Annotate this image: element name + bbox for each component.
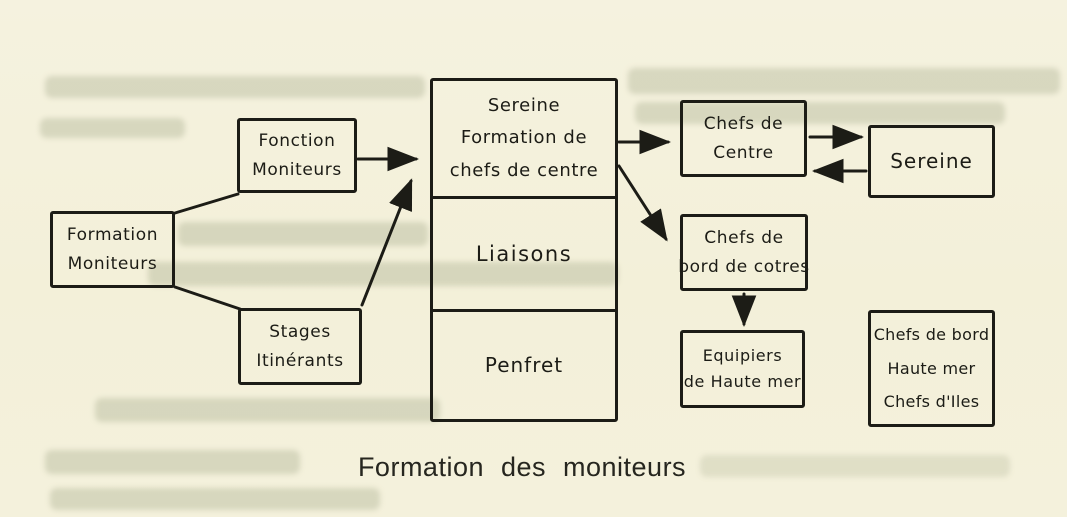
box-chefs-de-bord-haute-mer: Chefs de bord Haute mer Chefs d'Iles bbox=[868, 310, 995, 427]
box-label-line: Liaisons bbox=[476, 237, 572, 272]
box-label-line: Haute mer bbox=[888, 352, 976, 386]
box-fonction-moniteurs: Fonction Moniteurs bbox=[237, 118, 357, 193]
box-label-line: Formation de bbox=[461, 122, 587, 154]
box-formation-moniteurs: Formation Moniteurs bbox=[50, 211, 175, 288]
line-formation-to-stages bbox=[175, 287, 240, 309]
box-label-line: Equipiers bbox=[703, 343, 783, 369]
arrow-stages-to-central bbox=[362, 181, 411, 305]
box-equipiers-de-haute-mer: Equipiers de Haute mer bbox=[680, 330, 805, 408]
box-central-formation: Sereine Formation de chefs de centre Lia… bbox=[430, 78, 618, 422]
box-chefs-de-centre: Chefs de Centre bbox=[680, 100, 807, 177]
arrow-central-to-chefs-bord bbox=[619, 166, 666, 239]
box-label-line: Sereine bbox=[488, 90, 560, 122]
box-label-line: Chefs de bbox=[704, 224, 783, 252]
central-section-sereine-formation: Sereine Formation de chefs de centre bbox=[433, 81, 615, 196]
box-label-line: Chefs de bord bbox=[874, 318, 990, 352]
box-label-line: Sereine bbox=[890, 145, 973, 178]
box-label-line: Formation bbox=[67, 221, 158, 249]
box-label-line: Penfret bbox=[485, 349, 563, 382]
box-label-line: Moniteurs bbox=[252, 156, 342, 184]
box-label-line: Chefs de bbox=[704, 110, 783, 138]
box-label-line: Itinérants bbox=[256, 347, 343, 375]
box-label-line: Chefs d'Iles bbox=[884, 385, 980, 419]
box-label-line: Stages bbox=[269, 318, 331, 346]
box-label-line: chefs de centre bbox=[450, 155, 599, 187]
box-stages-itinerants: Stages Itinérants bbox=[238, 308, 362, 385]
box-label-line: de Haute mer bbox=[684, 369, 801, 395]
box-label-line: Fonction bbox=[258, 127, 335, 155]
box-label-line: bord de cotres bbox=[678, 253, 809, 281]
box-label-line: Centre bbox=[713, 139, 773, 167]
figure-caption: Formation des moniteurs bbox=[322, 452, 722, 483]
flow-diagram: Fonction Moniteurs Formation Moniteurs S… bbox=[0, 0, 1067, 517]
central-section-penfret: Penfret bbox=[433, 309, 615, 419]
box-sereine: Sereine bbox=[868, 125, 995, 198]
line-formation-to-fonction bbox=[175, 194, 238, 213]
central-section-liaisons: Liaisons bbox=[433, 196, 615, 309]
box-label-line: Moniteurs bbox=[68, 250, 158, 278]
scanned-page-background: Fonction Moniteurs Formation Moniteurs S… bbox=[0, 0, 1067, 517]
box-chefs-de-bord-de-cotres: Chefs de bord de cotres bbox=[680, 214, 808, 291]
